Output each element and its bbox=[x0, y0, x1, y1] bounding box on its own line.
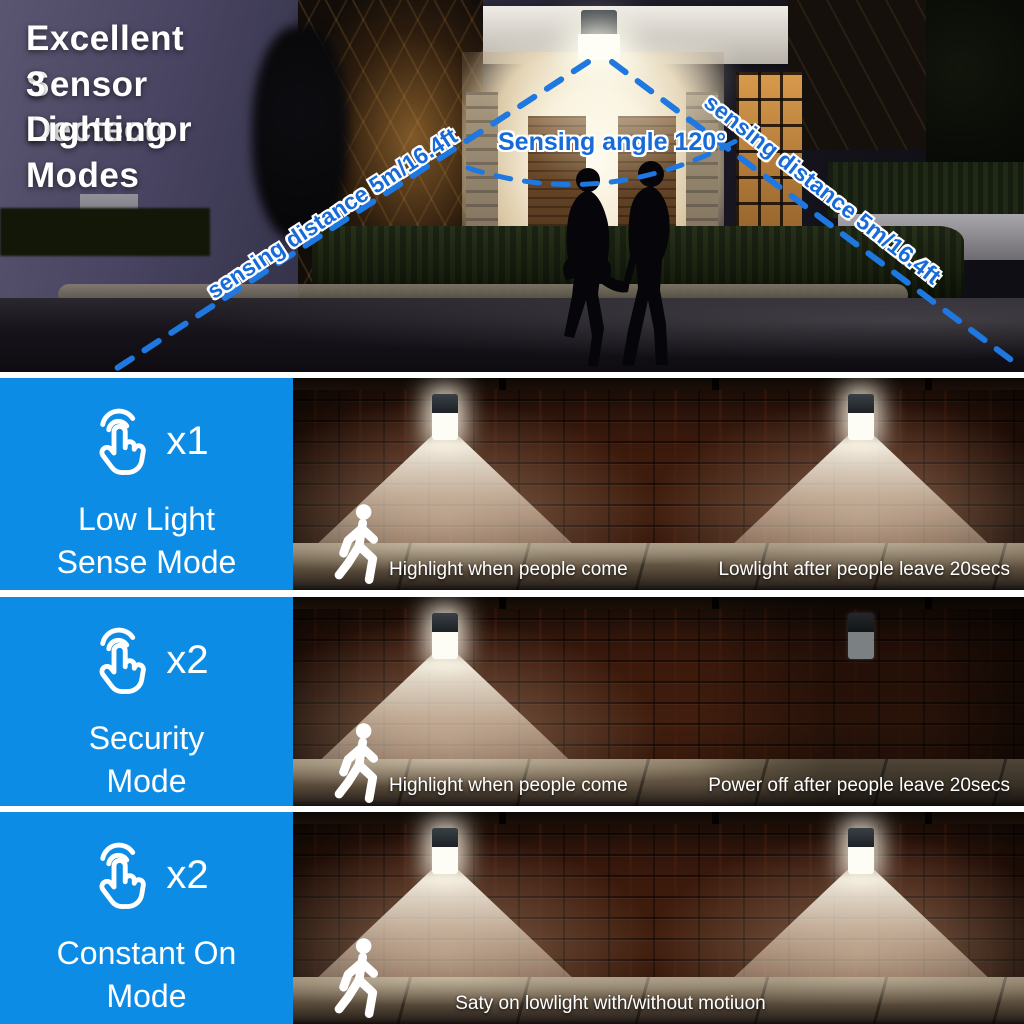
mode-row-constant-on: x2 Constant OnMode bbox=[0, 812, 1024, 1024]
mode-row-low-light-sense: x1 Low LightSense Mode bbox=[0, 378, 1024, 590]
mode-name: Low LightSense Mode bbox=[57, 498, 237, 584]
sensor-solar-panel bbox=[848, 613, 874, 632]
caption-left: Highlight when people come bbox=[389, 559, 628, 581]
sensor-solar-panel bbox=[432, 828, 458, 847]
mode-name-line2: Mode bbox=[106, 763, 186, 799]
wall-pipe bbox=[293, 597, 1024, 609]
mode-panel-low-light-sense: x1 Low LightSense Mode bbox=[0, 378, 293, 590]
sensor-light-icon-right-off bbox=[848, 613, 874, 659]
sensor-light-icon-right bbox=[848, 394, 874, 440]
mode-name-line2: Sense Mode bbox=[57, 544, 237, 580]
tap-finger-icon bbox=[84, 624, 156, 696]
sensor-light-icon-right bbox=[848, 828, 874, 874]
wall-pipe bbox=[293, 812, 1024, 824]
mode-name: SecurityMode bbox=[89, 717, 205, 803]
tap-count: x2 bbox=[166, 638, 208, 683]
sensor-light-icon-left bbox=[432, 828, 458, 874]
sensor-led-face bbox=[848, 632, 874, 659]
tap-gesture: x1 bbox=[84, 402, 208, 480]
sensor-led-face bbox=[848, 413, 874, 440]
hero-scene: Excellent Sensor Dectector3 Lighting Mod… bbox=[0, 0, 1024, 372]
sensor-light-icon-left bbox=[432, 394, 458, 440]
mode-panel-constant-on: x2 Constant OnMode bbox=[0, 812, 293, 1024]
sensor-led-face bbox=[848, 847, 874, 874]
brick-wall-scene: Saty on lowlight with/without motiuon bbox=[293, 812, 1024, 1024]
caption-row: Highlight when people come Power off aft… bbox=[293, 775, 1024, 797]
sensor-solar-panel bbox=[848, 394, 874, 413]
caption-row: Saty on lowlight with/without motiuon bbox=[293, 993, 976, 1015]
brick-wall-scene: Highlight when people come Lowlight afte… bbox=[293, 378, 1024, 590]
tap-count: x2 bbox=[166, 853, 208, 898]
mode-panel-security: x2 SecurityMode bbox=[0, 597, 293, 806]
caption-right: Power off after people leave 20secs bbox=[708, 775, 1010, 797]
caption-center: Saty on lowlight with/without motiuon bbox=[455, 993, 766, 1015]
wall-pipe bbox=[293, 378, 1024, 390]
mode-name-line1: Security bbox=[89, 720, 205, 756]
caption-right: Lowlight after people leave 20secs bbox=[718, 559, 1010, 581]
caption-left: Highlight when people come bbox=[389, 775, 628, 797]
sensor-solar-panel bbox=[432, 613, 458, 632]
sensor-light-icon-left bbox=[432, 613, 458, 659]
sensor-led-face bbox=[432, 413, 458, 440]
brick-wall-scene: Highlight when people come Power off aft… bbox=[293, 597, 1024, 806]
sensor-led-face bbox=[432, 847, 458, 874]
sensor-solar-panel bbox=[848, 828, 874, 847]
mode-name: Constant OnMode bbox=[57, 932, 237, 1018]
sensor-solar-panel bbox=[432, 394, 458, 413]
tap-count: x1 bbox=[166, 419, 208, 464]
sensor-led-face bbox=[432, 632, 458, 659]
sensing-angle-label: Sensing angle 120° bbox=[498, 128, 726, 157]
tap-gesture: x2 bbox=[84, 836, 208, 914]
mode-name-line1: Constant On bbox=[57, 935, 237, 971]
mode-row-security: x2 SecurityMode Highligh bbox=[0, 597, 1024, 806]
tap-finger-icon bbox=[84, 839, 156, 911]
mode-name-line1: Low Light bbox=[78, 501, 215, 537]
mode-name-line2: Mode bbox=[106, 978, 186, 1014]
title-line2: 3 Lighting Modes bbox=[26, 62, 168, 199]
tap-finger-icon bbox=[84, 405, 156, 477]
product-infographic: Excellent Sensor Dectector3 Lighting Mod… bbox=[0, 0, 1024, 1024]
caption-row: Highlight when people come Lowlight afte… bbox=[293, 559, 1024, 581]
tap-gesture: x2 bbox=[84, 621, 208, 699]
